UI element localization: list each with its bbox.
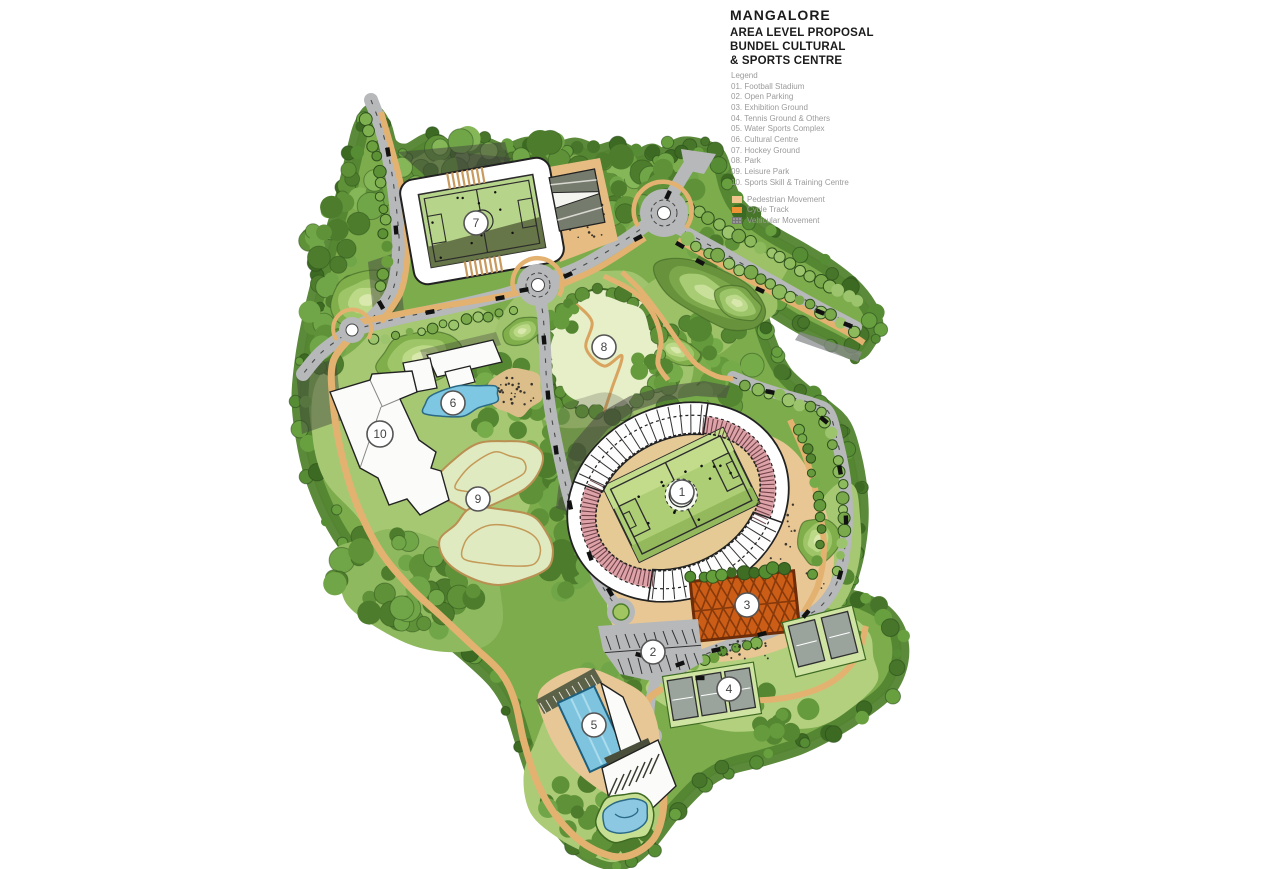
svg-text:10: 10 [373, 427, 387, 441]
svg-text:2: 2 [650, 645, 657, 659]
svg-text:5: 5 [591, 718, 598, 732]
svg-text:7: 7 [473, 216, 480, 230]
svg-text:3: 3 [744, 598, 751, 612]
svg-text:1: 1 [679, 485, 686, 499]
svg-text:6: 6 [450, 396, 457, 410]
svg-text:9: 9 [475, 492, 482, 506]
svg-text:4: 4 [726, 682, 733, 696]
svg-text:8: 8 [601, 340, 608, 354]
